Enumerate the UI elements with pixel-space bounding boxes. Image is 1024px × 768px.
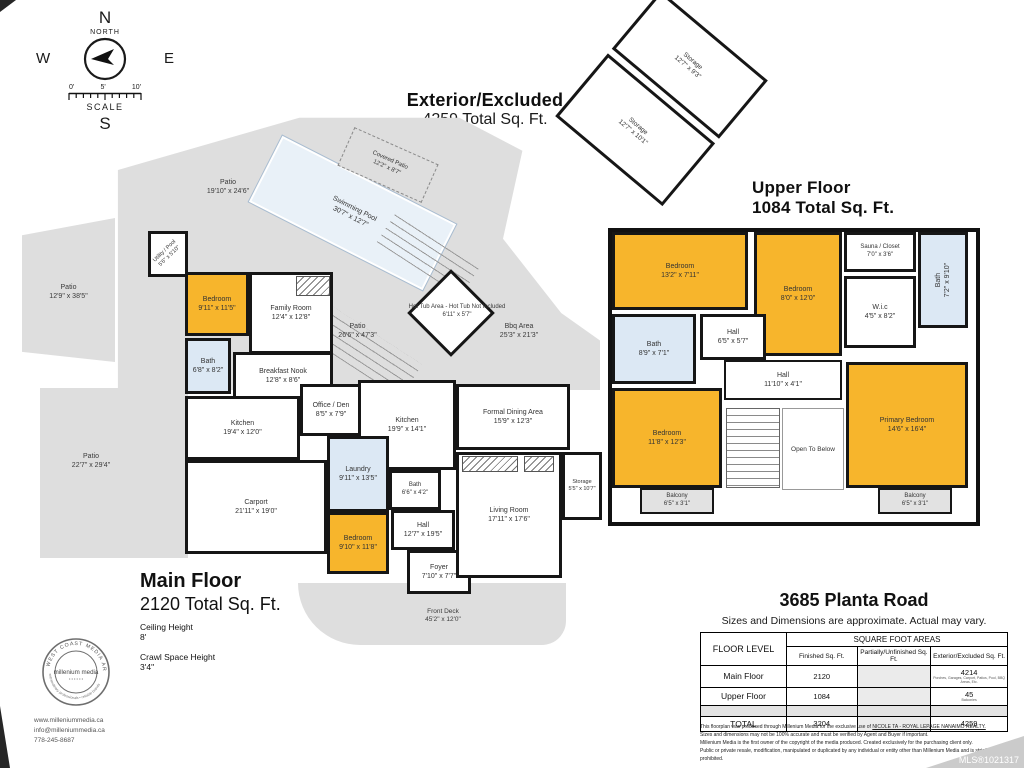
scale-bar: 0' 5' 10' SCALE S [30,84,180,134]
room-dims: 4'5" x 8'2" [865,312,896,321]
room-dims: 45'2" x 12'0" [398,616,488,624]
room-name: Bath [409,482,421,490]
room-name: Hall [727,328,739,337]
room-dims: 12'8" x 8'6" [266,376,301,385]
square-foot-table: FLOOR LEVEL SQUARE FOOT AREAS Finished S… [700,632,1008,732]
upper-bath-ensuite: Bath 7'2" x 9'10" [918,232,968,328]
room-name: Laundry [345,465,370,474]
mls-number: MLS®1021317 [959,755,1024,768]
disclaimer-agent: NICOLE TA - ROYAL LEPAGE NANAIMO REALTY. [872,724,985,730]
room-name: Bath [201,357,215,366]
primary-bedroom: Primary Bedroom 14'6" x 16'4" [846,362,968,488]
bedroom-main-2: Bedroom 9'10" x 11'8" [327,512,389,574]
room-dims: 12'7" x 19'5" [404,530,442,539]
room-name: Hall [417,521,429,530]
bottom-left-corner-fold [0,706,10,768]
row-exterior: 4214 Porches, Garages, Carport, Patios, … [931,666,1008,688]
fireplace-hatch [296,276,330,296]
hall-main: Hall 12'7" x 19'5" [391,510,455,550]
patio-bottom-left-label: Patio 22'7" x 29'4" [46,452,136,470]
room-name: Bath [647,340,661,349]
room-name: Storage [572,479,591,486]
room-dims: 19'4" x 12'0" [223,428,261,437]
room-dims: 9'11" x 11'5" [198,304,235,313]
balcony-right: Balcony 6'5" x 3'1" [878,488,952,514]
compass-north-label: NORTH [30,29,180,36]
room-name: Sauna / Closet [860,244,899,252]
utility-pool-room: Utility / Pool 5'6" x 5'10" [148,231,188,277]
upper-bedroom-2: Bedroom 8'0" x 12'0" [754,232,842,356]
room-name: Hot Tub Area - Hot Tub Not Included [382,304,532,312]
room-name: Balcony [666,493,687,501]
disclaimer-text: This floorplan was produced through Mill… [700,724,872,730]
room-name: Bath [934,263,943,298]
room-name: Bedroom [203,295,231,304]
room-dims: 12'4" x 12'8" [272,313,310,322]
room-dims: 19'10" x 24'6" [190,187,266,196]
upper-bath: Bath 8'9" x 7'1" [612,314,696,384]
room-name: Bedroom [344,534,372,543]
table-row: Upper Floor 1084 45 Balconies [701,687,1008,705]
upper-bedroom-1: Bedroom 13'2" x 7'11" [612,232,748,310]
room-dims: 8'5" x 7'9" [316,410,347,419]
living-hatch-2 [524,456,554,472]
room-dims: 6'6" x 4'2" [402,490,428,498]
scale-tick-10: 10' [132,84,141,91]
balcony-left: Balcony 6'5" x 3'1" [640,488,714,514]
disclaimer-block: This floorplan was produced through Mill… [700,723,1002,763]
room-name: Front Deck [398,608,488,616]
scale-tick-0: 0' [69,84,74,91]
office-den: Office / Den 8'5" x 7'9" [300,384,362,436]
room-name: W.i.c [872,303,887,312]
compass-n-label: N [30,8,180,28]
upper-floor-title-block: Upper Floor 1084 Total Sq. Ft. [752,178,952,218]
room-name: Primary Bedroom [880,416,934,425]
carport: Carport 21'11" x 19'0" [185,460,327,554]
room-dims: 14'6" x 16'4" [888,425,926,434]
bath-main-2: Bath 6'6" x 4'2" [389,470,441,510]
row-level: Main Floor [701,666,787,688]
room-dims: 8'9" x 7'1" [639,349,670,358]
exterior-note: Balconies [932,699,1006,703]
scale-label: SCALE [30,102,180,112]
room-name: Living Room [490,506,529,515]
room-dims: 6'5" x 3'1" [902,501,928,509]
upper-bedroom-3: Bedroom 11'8" x 12'3" [612,388,722,488]
disclaimer-line-2: Sizes and dimensions may not be 100% acc… [700,731,1002,739]
bedroom-main-1: Bedroom 9'11" x 11'5" [185,272,249,336]
room-dims: 6'11" x 5'7" [382,312,532,320]
room-dims: 7'2" x 9'10" [943,263,952,298]
room-dims: 7'10" x 7'7" [422,572,457,581]
room-name: Bedroom [784,285,812,294]
floor-level-header: FLOOR LEVEL [701,633,787,666]
room-name: Bbq Area [480,322,558,331]
crawl-height-value: 3'4" [140,662,310,672]
top-left-corner-fold [0,0,16,12]
stamp-center-text: millenium media [54,669,99,676]
main-floor-title-block: Main Floor 2120 Total Sq. Ft. Ceiling He… [140,570,310,672]
compass-arrow-icon [82,36,128,82]
patio-bottom-left-zone [40,388,188,558]
kitchen-main-1: Kitchen 19'4" x 12'0" [185,396,300,460]
exterior-note: Porches, Garages, Carport, Patios, Pool,… [932,677,1006,685]
address-subtitle: Sizes and Dimensions are approximate. Ac… [700,615,1008,627]
scale-ruler-icon [67,92,143,101]
room-dims: 6'8" x 8'2" [193,366,224,375]
upper-hall-small: Hall 6'5" x 5'7" [700,314,766,360]
staircase [726,408,780,488]
sqft-areas-header: SQUARE FOOT AREAS [786,633,1007,647]
room-name: Family Room [270,304,311,313]
col-partial: Partially/Unfinished Sq. Ft. [857,647,931,666]
crawl-height-label: Crawl Space Height [140,652,310,662]
room-dims: 15'9" x 12'3" [494,417,532,426]
front-deck-label: Front Deck 45'2" x 12'0" [398,608,488,625]
disclaimer-line-1: This floorplan was produced through Mill… [700,723,1002,731]
room-name: Carport [244,498,267,507]
ceiling-height-value: 8' [140,632,310,642]
room-dims: 21'11" x 19'0" [235,507,277,516]
address-title: 3685 Planta Road [700,590,1008,611]
room-label: Utility / Pool 5'6" x 5'10" [153,239,184,269]
room-dims: 12'9" x 38'5" [26,292,111,301]
compass-rose: N NORTH W E 0' 5' 10' [30,8,180,143]
room-dims: 7'0" x 3'6" [867,252,893,260]
room-dims: 25'3" x 21'3" [480,331,558,340]
upper-floor-title: Upper Floor [752,178,952,198]
hot-tub-label: Hot Tub Area - Hot Tub Not Included 6'11… [382,304,532,320]
email-link[interactable]: info@milleniummedia.ca [34,726,105,736]
room-dims: 11'8" x 12'3" [648,438,686,447]
room-dims: 11'10" x 4'1" [764,380,802,389]
room-name: Office / Den [313,401,350,410]
table-row: Main Floor 2120 4214 Porches, Garages, C… [701,666,1008,688]
room-name: Bedroom [666,262,694,271]
room-name: Breakfast Nook [259,367,307,376]
room-dims: 5'5" x 10'7" [568,486,595,493]
living-hatch-1 [462,456,518,472]
room-dims: 6'5" x 5'7" [718,337,749,346]
room-name: Hall [777,371,789,380]
ceiling-height-label: Ceiling Height [140,622,310,632]
room-name: Patio [26,283,111,292]
room-dims: 9'11" x 13'5" [339,474,377,483]
room-name: Foyer [430,563,448,572]
walk-in-closet: W.i.c 4'5" x 8'2" [844,276,916,348]
col-finished: Finished Sq. Ft. [786,647,857,666]
storage-wing: Storage 12'7" x 9'3" Storage 12'7" x 10'… [550,0,774,217]
compass-e-label: E [164,50,174,67]
room-dims: 6'5" x 3'1" [664,501,690,509]
upper-floor-subtitle: 1084 Total Sq. Ft. [752,198,952,218]
room-dims: 8'0" x 12'0" [781,294,816,303]
upper-hall-long: Hall 11'10" x 4'1" [724,360,842,400]
scale-tick-5: 5' [100,84,105,91]
room-dims: 17'11" x 17'6" [488,515,530,524]
row-level: Upper Floor [701,687,787,705]
room-name: Bedroom [653,429,681,438]
website-link[interactable]: www.milleniummedia.ca [34,716,105,726]
row-finished: 2120 [786,666,857,688]
disclaimer-line-3: Millenium Media is the first owner of th… [700,739,1002,747]
row-exterior: 45 Balconies [931,687,1008,705]
room-dims: 19'9" x 14'1" [388,425,426,434]
room-name: Formal Dining Area [483,408,543,417]
room-name: Patio [46,452,136,461]
storage-main: Storage 5'5" x 10'7" [562,452,602,520]
contact-block: www.milleniummedia.ca info@milleniummedi… [34,716,105,745]
formal-dining-area: Formal Dining Area 15'9" x 12'3" [456,384,570,450]
bbq-area-label: Bbq Area 25'3" x 21'3" [480,322,558,340]
room-name: Patio [190,178,266,187]
patio-left-label: Patio 12'9" x 38'5" [26,283,111,301]
phone-number: 778-245-8687 [34,736,105,746]
main-floor-title: Main Floor [140,570,310,593]
room-name: Kitchen [231,419,254,428]
address-block: 3685 Planta Road Sizes and Dimensions ar… [700,590,1008,732]
spacer-row [701,705,1008,716]
bath-main-1: Bath 6'8" x 8'2" [185,338,231,394]
row-finished: 1084 [786,687,857,705]
room-label: Bath 7'2" x 9'10" [934,263,952,298]
room-dims: 22'7" x 29'4" [46,461,136,470]
room-dims: 13'2" x 7'11" [661,271,699,280]
room-dims: 9'10" x 11'8" [339,543,377,552]
col-exterior: Exterior/Excluded Sq. Ft. [931,647,1008,666]
upper-floor-plan: Bedroom 13'2" x 7'11" Bedroom 8'0" x 12'… [608,228,980,526]
room-name: Balcony [904,493,925,501]
compass-w-label: W [36,50,50,67]
exterior-title: Exterior/Excluded [395,90,575,111]
room-name: Kitchen [395,416,418,425]
compass-s-label: S [30,114,180,134]
sauna-closet: Sauna / Closet 7'0" x 3'6" [844,232,916,272]
floorplan-page: N NORTH W E 0' 5' 10' [0,0,1024,768]
patio-top-label: Patio 19'10" x 24'6" [190,178,266,196]
svg-text:• • • • • •: • • • • • • [69,676,84,681]
main-floor-subtitle: 2120 Total Sq. Ft. [140,594,310,615]
open-to-below: Open To Below [782,408,844,490]
row-partial [857,687,931,705]
laundry-room: Laundry 9'11" x 13'5" [327,436,389,512]
millenium-media-stamp: WEST COAST MEDIA ARTS extraordinary prof… [34,630,118,714]
row-partial [857,666,931,688]
